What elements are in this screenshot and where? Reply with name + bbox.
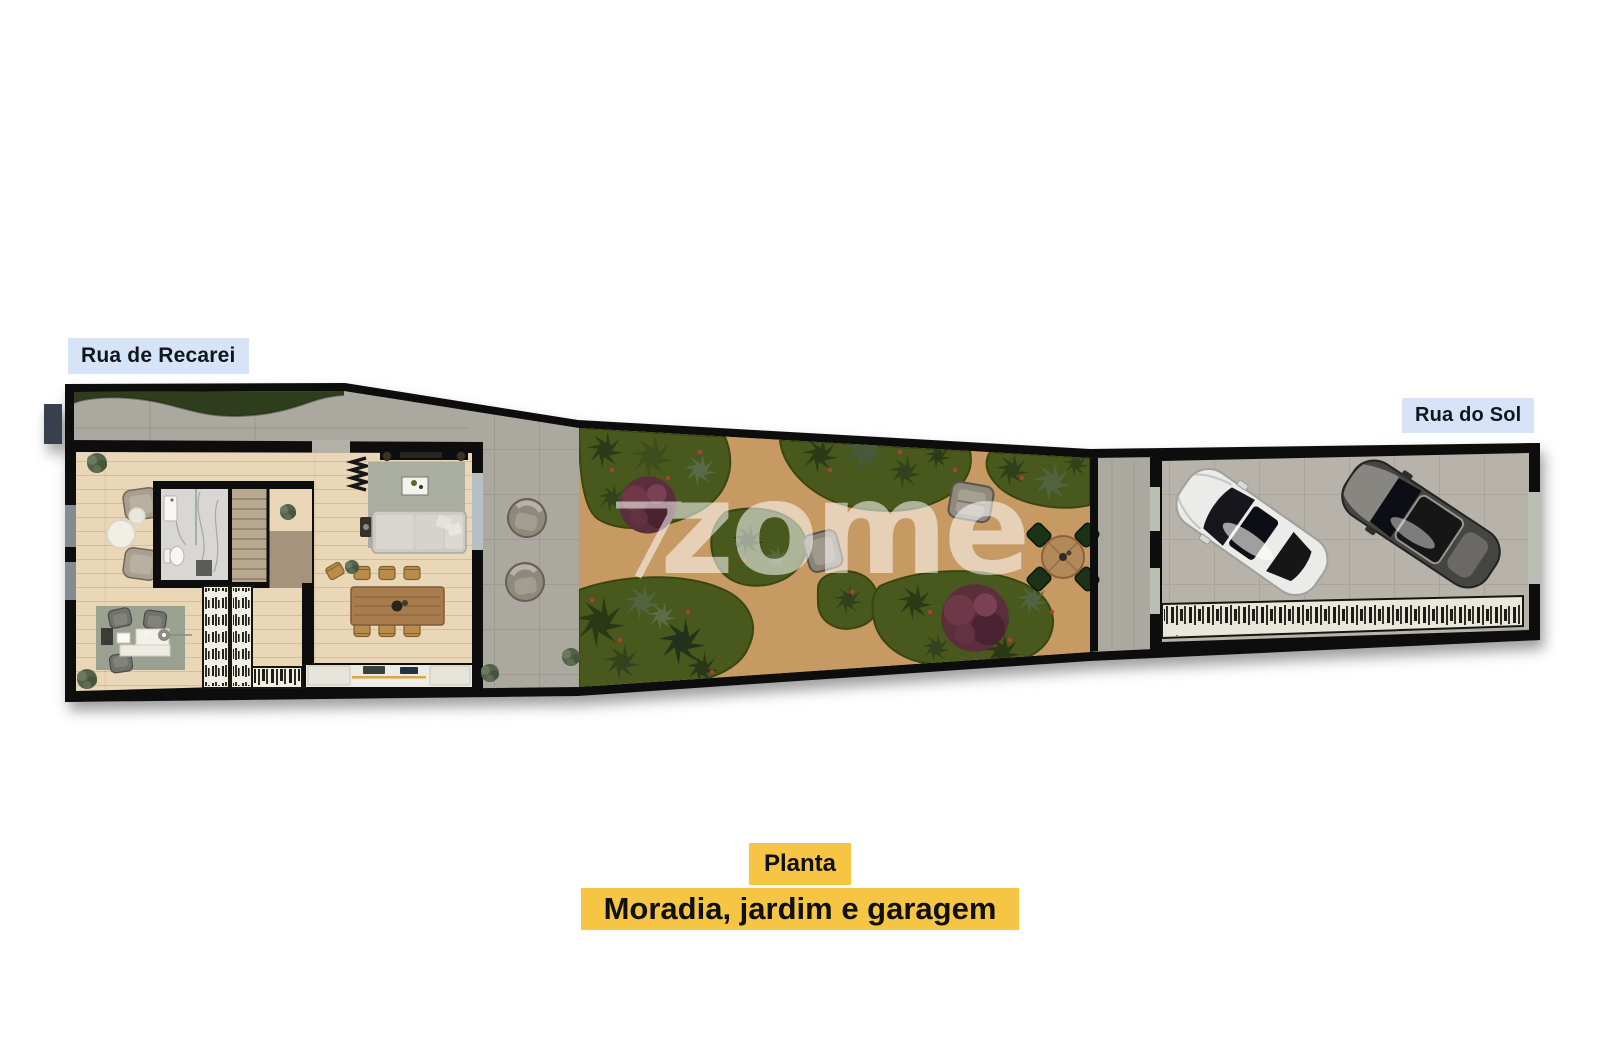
dining-chair [379,567,395,580]
watermark: zome [616,455,1027,604]
patio [483,413,579,691]
potted-plant [562,648,580,666]
bathroom-stairs-block [153,481,314,588]
speaker [383,452,392,461]
toilet-tank [164,549,170,563]
watermark-text: zome [660,455,1027,604]
garage [1150,443,1540,654]
caption-block: Planta Moradia, jardim e garagem [0,843,1600,930]
desk-return [120,645,170,656]
window-right [472,473,483,550]
speaker [457,452,466,461]
house [65,440,483,702]
kitchen-counter [304,663,474,689]
tv-screen [400,452,442,458]
monitor [101,628,113,645]
stair-landing [268,531,312,588]
sofa [372,511,466,553]
window-left-1 [65,505,76,547]
potted-plant [345,560,359,574]
street-label-rua-de-recarei: Rua de Recarei [68,338,249,374]
dining-chair [404,567,420,580]
picture-frame [402,477,428,495]
plan-subtitle: Moradia, jardim e garagem [581,888,1020,930]
office-chair [107,607,132,629]
entry-door [312,440,350,453]
toilet [170,547,184,566]
potted-plant [280,504,296,520]
street-label-rua-do-sol: Rua do Sol [1402,398,1534,433]
neighbor-wall [44,404,62,444]
living-room [352,451,468,553]
garage-right-opening [1528,492,1540,584]
bathroom [161,489,228,580]
garage-gate-posts [1150,487,1160,531]
potted-plant [481,664,499,682]
window-left-2 [65,562,76,600]
potted-plant [87,453,107,473]
cooktop [363,666,385,674]
plan-title: Planta [749,843,851,885]
side-table [129,508,145,524]
stairs [232,489,312,588]
coffee-table [107,520,135,548]
shower-tray [196,560,212,576]
office-chair [143,610,167,631]
kitchen-sink [400,667,418,674]
laptop [117,633,130,643]
office-area [96,606,192,673]
potted-plant [77,669,97,689]
floor-plan-page: zome Rua de Recarei Rua do Sol Planta Mo… [0,0,1600,1062]
